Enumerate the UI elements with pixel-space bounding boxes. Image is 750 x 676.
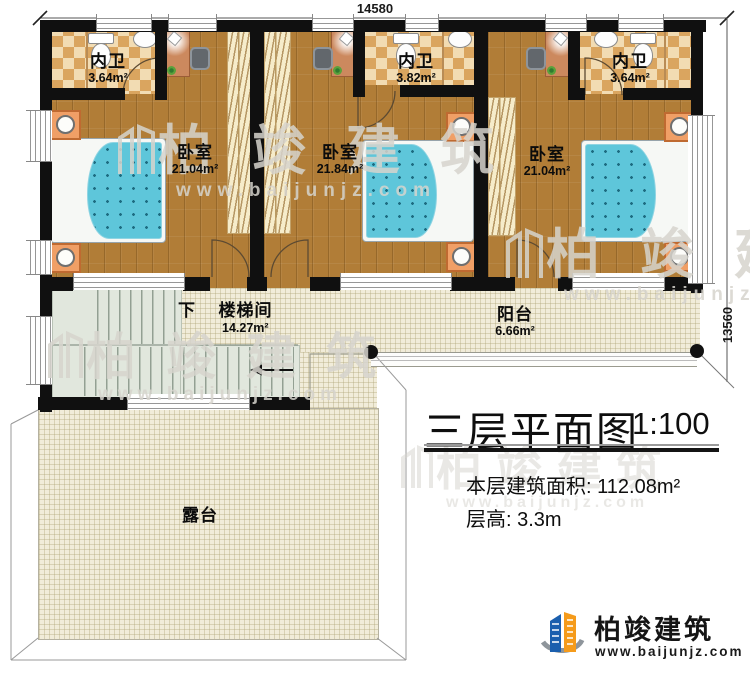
plan-linework — [0, 0, 750, 676]
window — [96, 14, 152, 31]
wall-bath3 — [623, 88, 703, 100]
company-logo-icon — [536, 604, 590, 660]
title-underline-thick — [424, 448, 719, 452]
room-label-bed1: 卧室 21.04m² — [150, 144, 240, 176]
wall-bath2 — [353, 85, 365, 97]
wall-mid — [183, 277, 210, 291]
company-logo-name: 柏竣建筑 — [594, 608, 714, 647]
window — [618, 14, 664, 31]
room-label-bath1: 内卫 3.64m² — [63, 53, 153, 85]
window — [688, 115, 715, 284]
room-label-balcony: 阳台 6.66m² — [465, 306, 565, 338]
window — [127, 394, 250, 410]
column-dot — [364, 345, 378, 359]
wall-stair-bottom — [38, 397, 127, 410]
title-underline-thin — [424, 444, 719, 446]
wall-mid — [40, 277, 73, 291]
wall-stair-bottom — [248, 397, 310, 410]
wall-bed1-bed2 — [250, 20, 264, 277]
window — [73, 273, 185, 290]
window — [340, 273, 452, 290]
room-label-terrace: 露台 — [158, 507, 242, 525]
drawing-scale: 1:100 — [632, 406, 710, 442]
dimension-top: 14580 — [345, 1, 405, 16]
wall-mid — [450, 277, 515, 291]
room-label-bath3: 内卫 3.64m² — [585, 53, 675, 85]
floor-plan-canvas: 柏竣建筑 www.baijunjz.com 柏竣建筑 www.baijunjz.… — [0, 0, 750, 676]
wall-bed2-bed3 — [474, 20, 488, 277]
floor-height-text: 层高: 3.3m — [466, 503, 562, 532]
window — [405, 14, 439, 31]
wall-mid — [558, 277, 572, 291]
wall-bath1 — [155, 20, 167, 100]
column-dot — [690, 344, 704, 358]
company-logo-site: www.baijunjz.com — [595, 644, 744, 659]
wall-bath1 — [40, 88, 125, 100]
window — [26, 110, 52, 162]
window — [26, 316, 52, 385]
wall-mid — [310, 277, 340, 291]
floor-area-text: 本层建筑面积: 112.08m² — [466, 470, 680, 499]
window — [168, 14, 217, 31]
dimension-right: 13560 — [720, 295, 736, 355]
wall-bath3 — [568, 88, 585, 100]
room-label-bed3: 卧室 21.04m² — [502, 146, 592, 178]
wall-bath2 — [400, 85, 480, 97]
window — [26, 240, 52, 275]
wall-mid — [247, 277, 267, 291]
window — [572, 273, 665, 290]
window — [545, 14, 587, 31]
window — [312, 14, 354, 31]
room-label-stairwell: 下 楼梯间 14.27m² — [178, 302, 298, 335]
room-label-bath2: 内卫 3.82m² — [371, 53, 461, 85]
room-label-bed2: 卧室 21.84m² — [295, 144, 385, 176]
